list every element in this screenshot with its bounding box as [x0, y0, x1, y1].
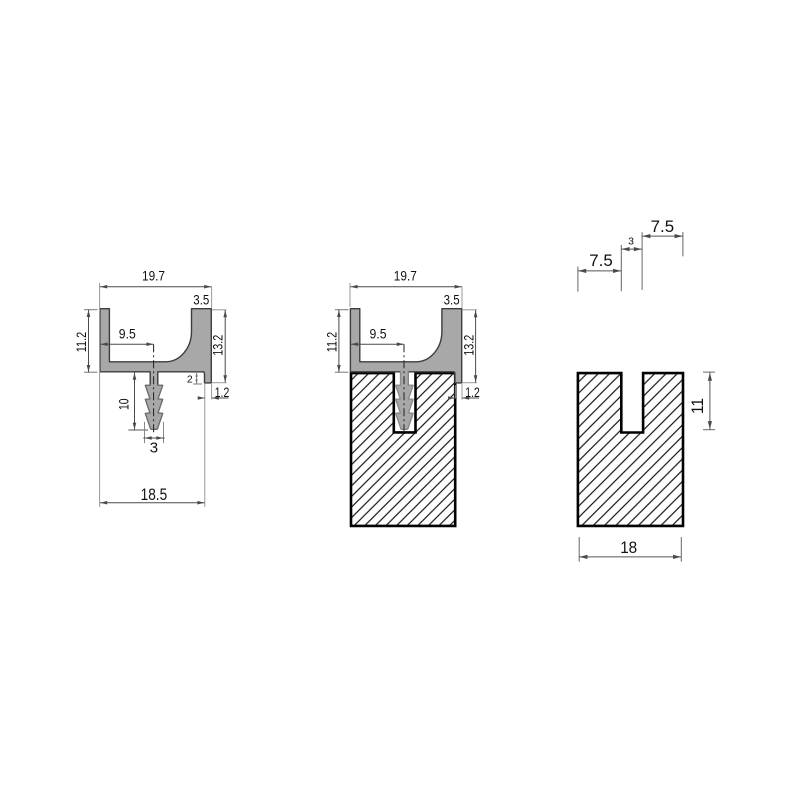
svg-text:9.5: 9.5 [119, 326, 136, 342]
svg-text:3: 3 [628, 236, 634, 248]
svg-text:11.2: 11.2 [73, 332, 89, 353]
svg-text:10: 10 [116, 398, 132, 410]
svg-text:13.2: 13.2 [210, 335, 226, 356]
svg-text:3: 3 [150, 440, 158, 457]
svg-text:19.7: 19.7 [142, 268, 165, 284]
svg-text:7.5: 7.5 [651, 217, 675, 236]
svg-text:11.2: 11.2 [323, 332, 339, 353]
svg-text:3.5: 3.5 [444, 291, 460, 307]
svg-text:3.5: 3.5 [193, 291, 209, 307]
svg-text:11: 11 [688, 398, 707, 414]
svg-text:7.5: 7.5 [589, 251, 613, 270]
svg-text:9.5: 9.5 [370, 326, 387, 342]
svg-text:1.2: 1.2 [465, 384, 480, 400]
svg-text:1.2: 1.2 [215, 384, 230, 400]
svg-text:18.5: 18.5 [141, 485, 168, 504]
svg-text:19.7: 19.7 [394, 268, 417, 284]
svg-text:13.2: 13.2 [460, 335, 476, 356]
svg-text:18: 18 [620, 538, 637, 557]
svg-text:2: 2 [187, 373, 193, 385]
